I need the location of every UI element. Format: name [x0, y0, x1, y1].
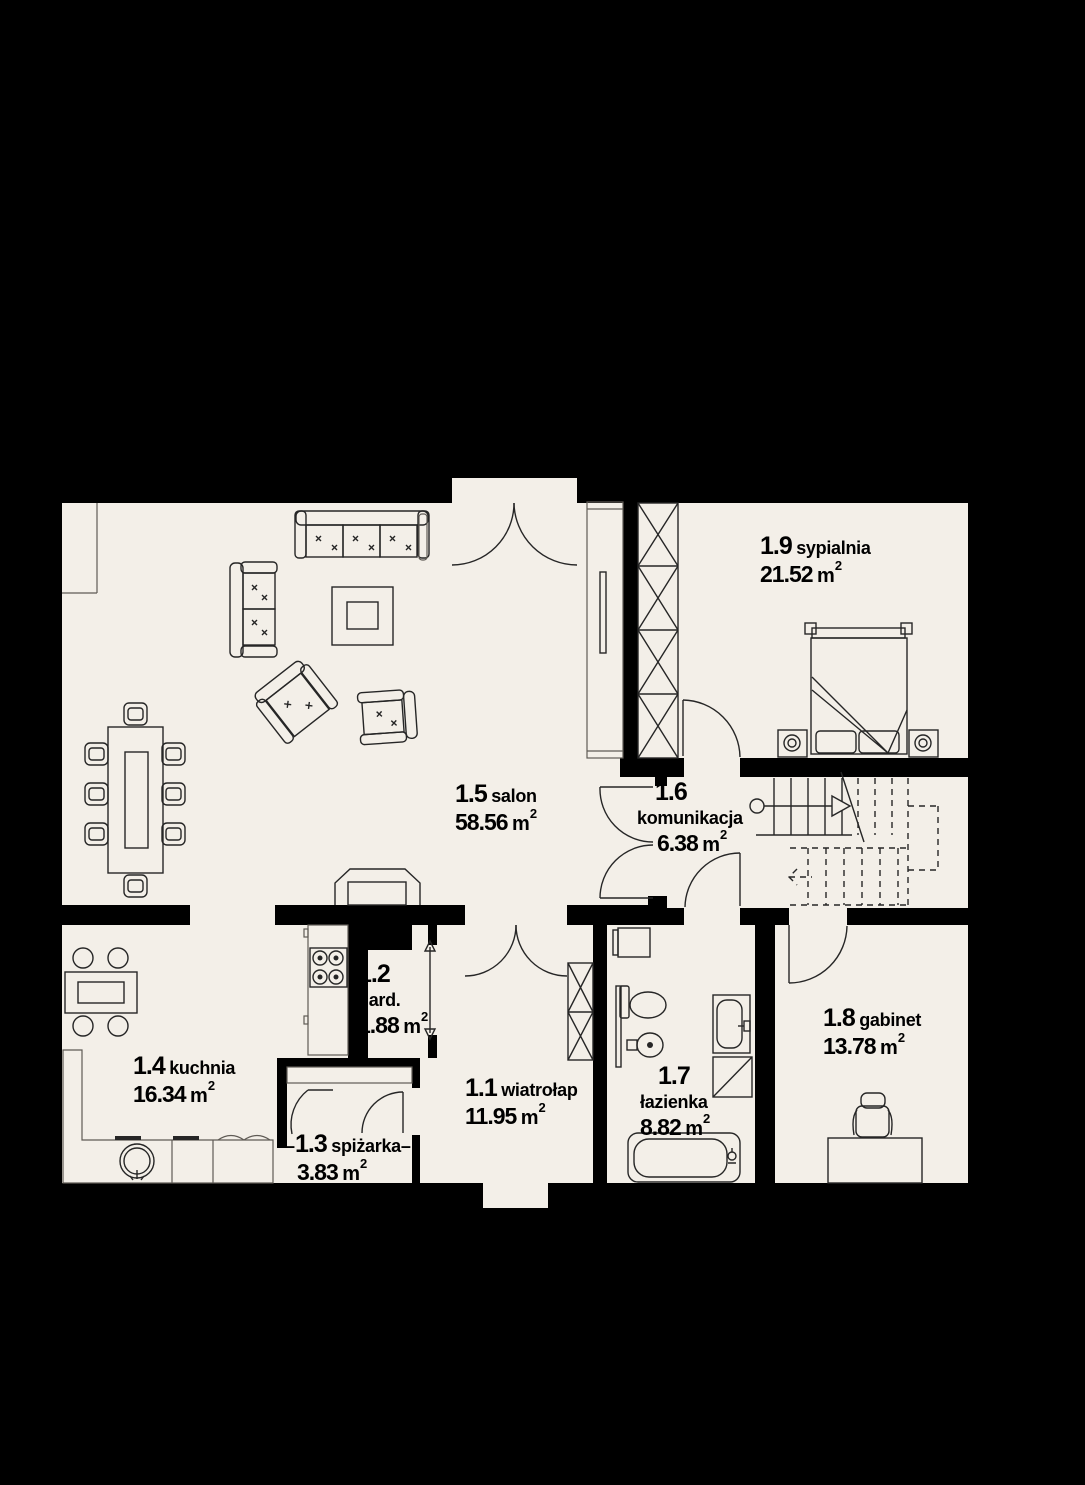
label-wiatrolap: 1.1 wiatrołap 11.95 m2	[465, 1076, 578, 1128]
floor-plan: 1.5 salon 58.56 m2 1.9 sypialnia 21.52 m…	[0, 0, 1085, 1485]
label-lazienka: 1.7 łazienka 8.82 m2	[640, 1064, 710, 1139]
lazienka-floor	[607, 925, 755, 1183]
opening-salon-wiatrolap	[465, 903, 567, 927]
entrance-recess	[483, 1183, 548, 1208]
label-spizarka: –1.3 spiżarka– 3.83 m2	[285, 1132, 411, 1184]
opening-gabinet	[789, 906, 847, 927]
label-sypialnia: 1.9 sypialnia 21.52 m2	[760, 534, 871, 586]
label-garderoba: 1.2 gard. 1.88 m2	[358, 962, 428, 1037]
opening-spizarka	[412, 1088, 420, 1135]
kuchnia-floor-a	[62, 925, 348, 1058]
wiatrolap-floor	[437, 925, 593, 1183]
terrace-door-recess	[452, 478, 577, 503]
salon-floor	[62, 503, 623, 905]
chimney-block	[368, 925, 412, 950]
opening-salon-kuchnia	[190, 903, 275, 927]
label-gabinet: 1.8 gabinet 13.78 m2	[823, 1006, 921, 1058]
label-kuchnia: 1.4 kuchnia 16.34 m2	[133, 1054, 235, 1106]
opening-lazienka	[684, 906, 740, 927]
opening-sypialnia	[683, 756, 740, 779]
label-komunikacja: 1.6 komunikacja 6.38 m2	[637, 780, 743, 855]
floorplan-svg	[0, 0, 1085, 1485]
label-salon: 1.5 salon 58.56 m2	[455, 782, 537, 834]
wiatrolap-floor-b	[420, 1058, 437, 1183]
wall-band	[620, 758, 684, 777]
